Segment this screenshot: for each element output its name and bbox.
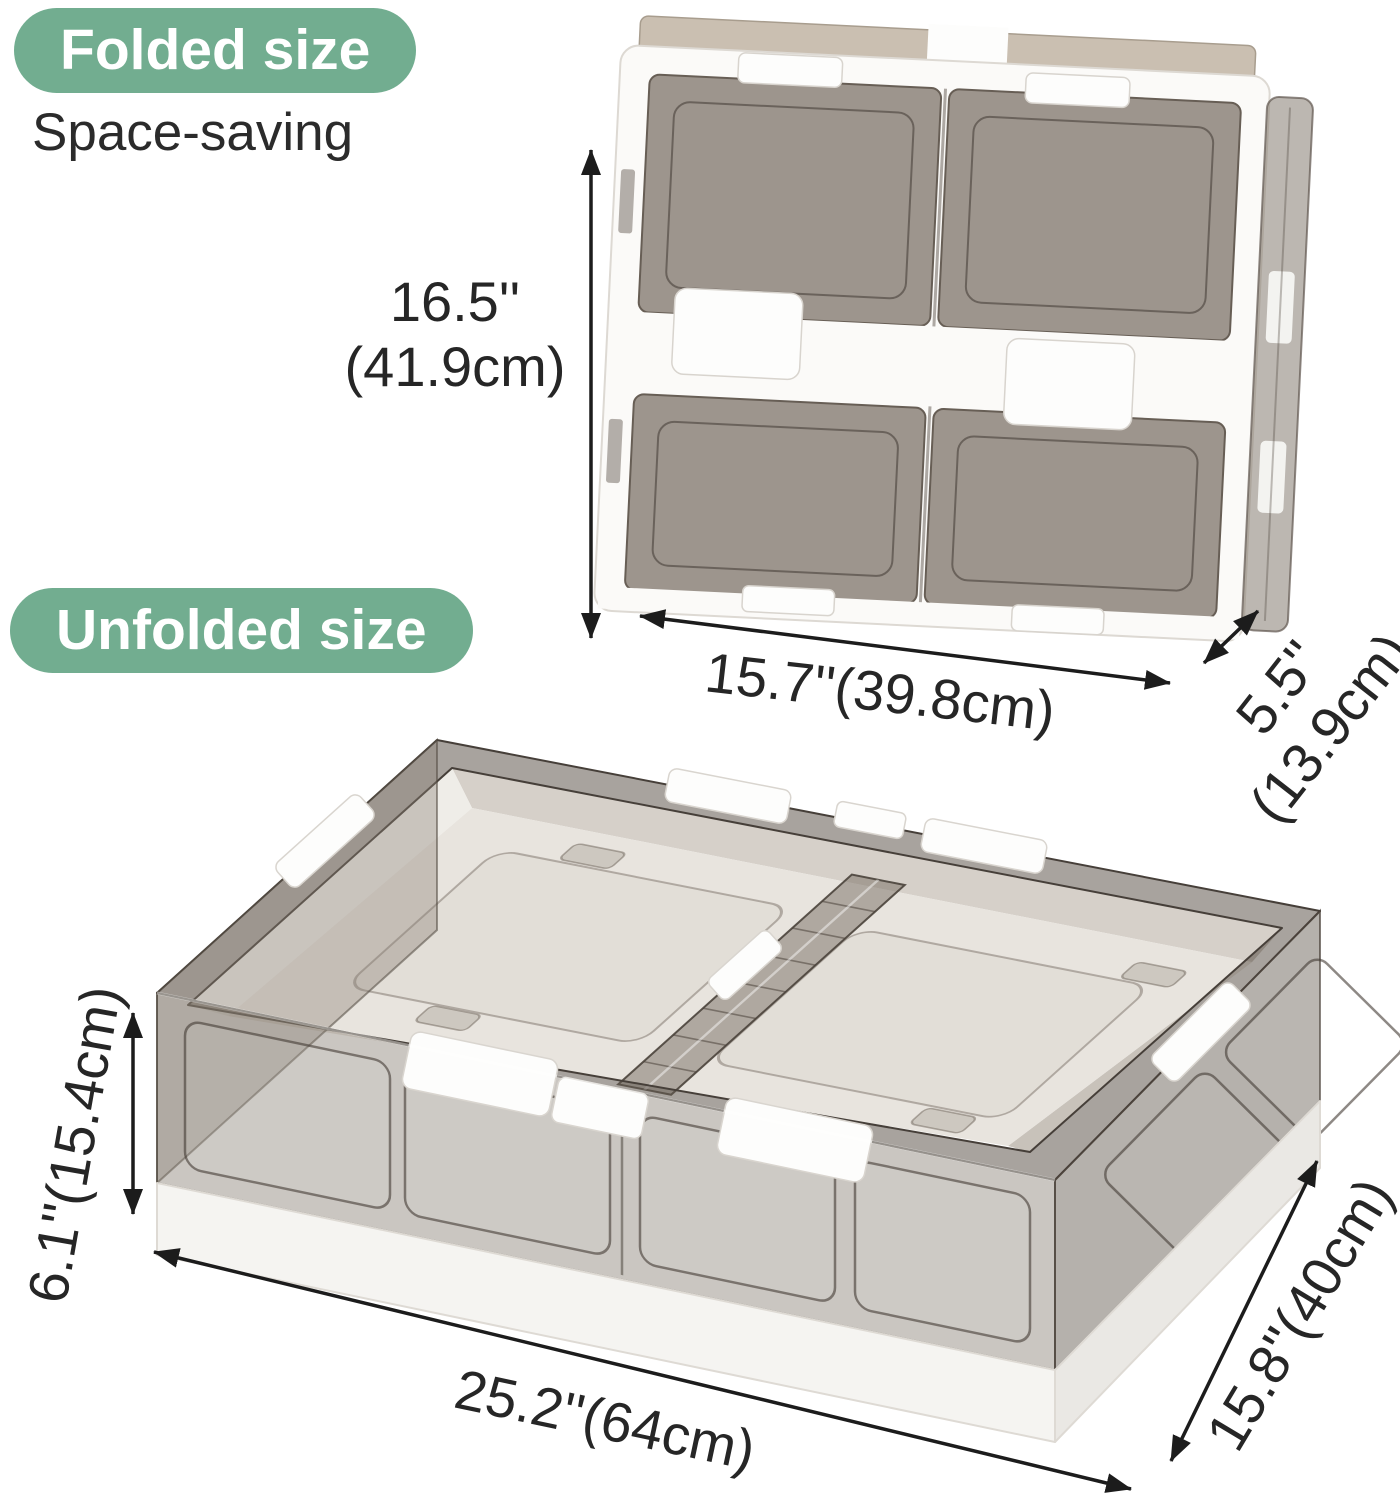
folded-height-label: 16.5'' (41.9cm) (305, 270, 605, 400)
folded-box-illustration (555, 5, 1335, 695)
unfolded-size-badge: Unfolded size (10, 588, 473, 673)
folded-subtitle: Space-saving (32, 102, 353, 163)
folded-height-inches: 16.5'' (305, 270, 605, 335)
folded-height-cm: (41.9cm) (305, 335, 605, 400)
product-dimension-infographic: Folded size Space-saving Unfolded size (0, 0, 1400, 1500)
unfolded-box-illustration (100, 700, 1400, 1500)
folded-size-badge: Folded size (14, 8, 416, 93)
